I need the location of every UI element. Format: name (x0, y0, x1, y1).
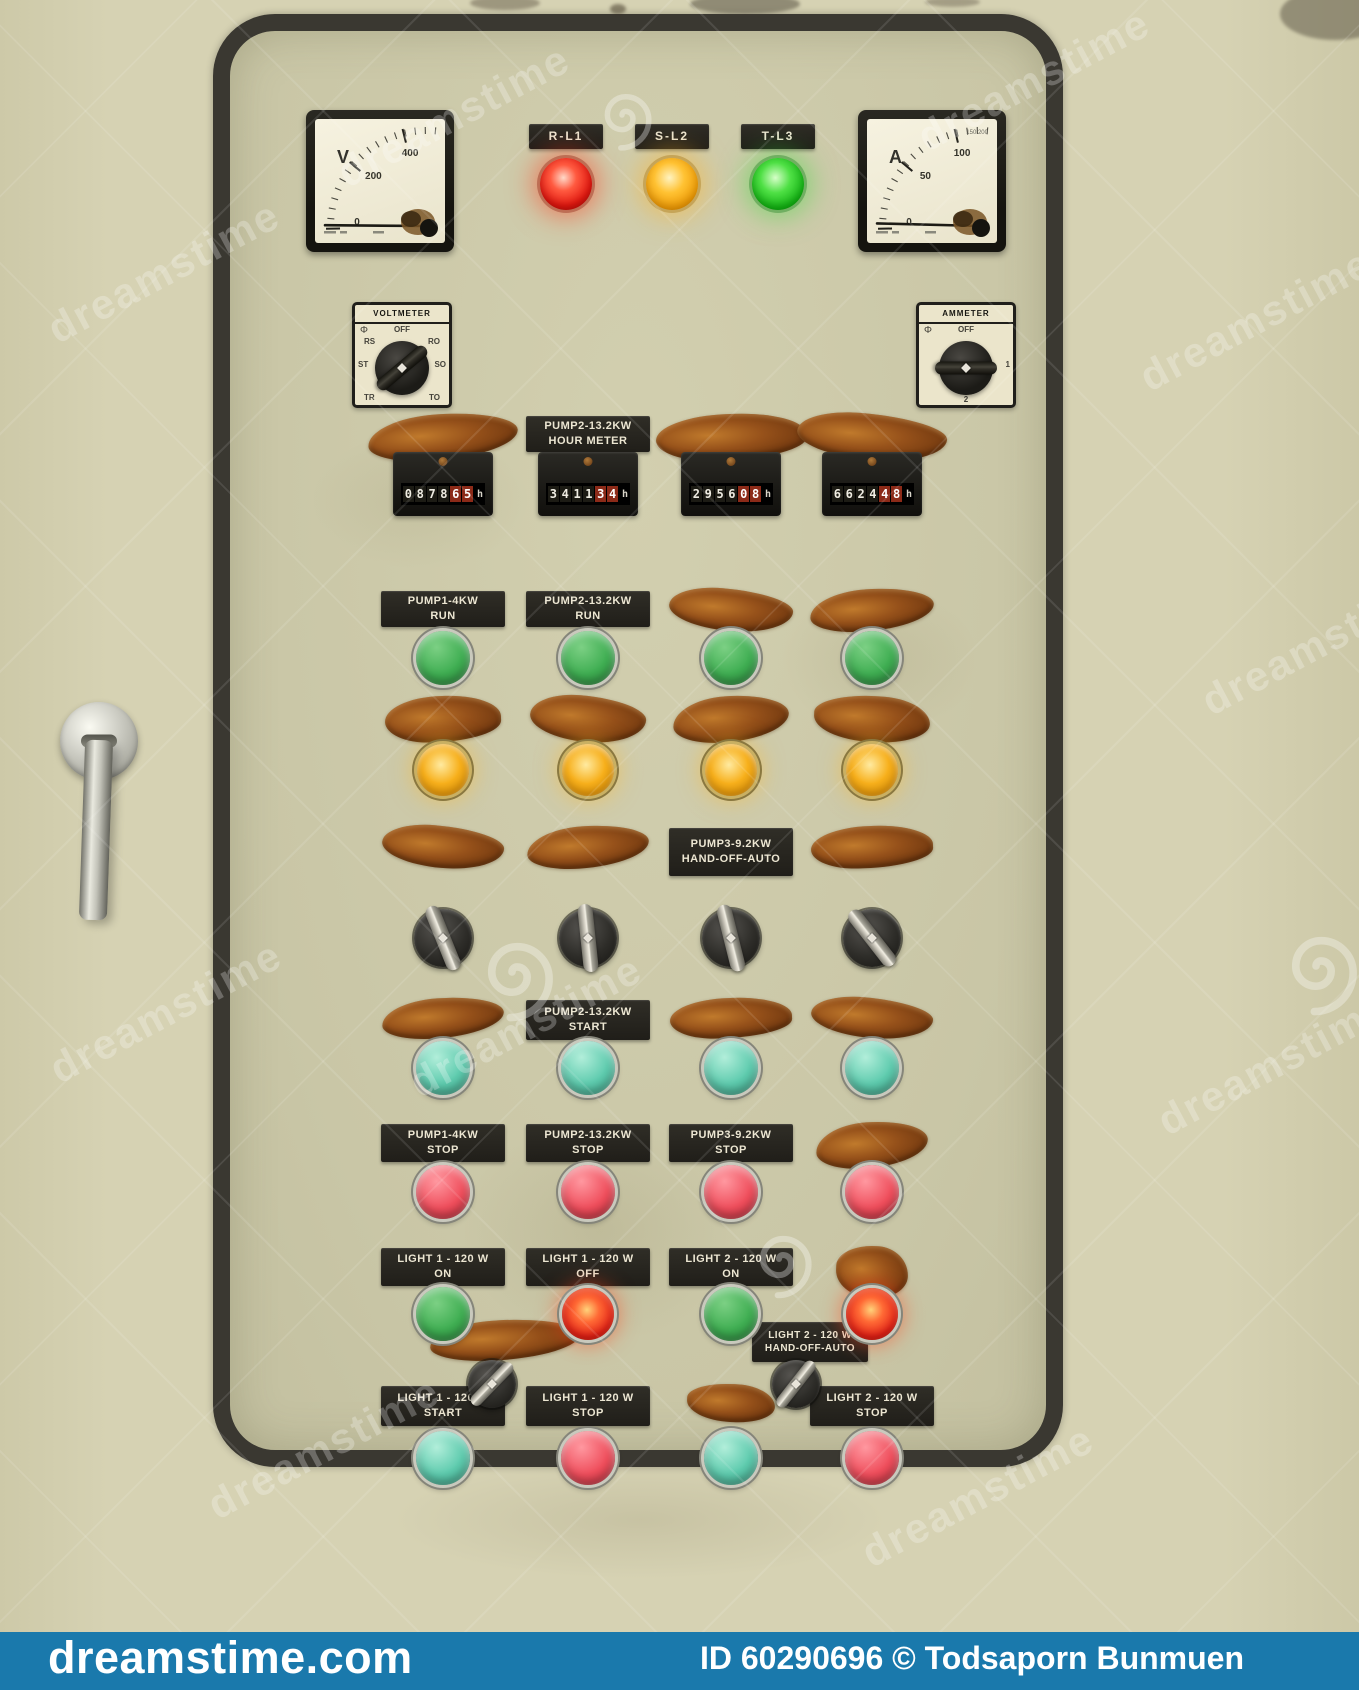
counter-digit: 8 (438, 486, 449, 502)
button-cap (416, 1041, 470, 1095)
hoa-knob (414, 909, 472, 967)
ammeter-gauge: 050100A150 200 (858, 110, 1006, 252)
counter-digit: 8 (891, 486, 902, 502)
button-cap (704, 1041, 758, 1095)
light-hoa-selector-2[interactable] (772, 1360, 820, 1408)
hoa-knob-lever (468, 1360, 516, 1409)
counter-digit: 7 (427, 486, 438, 502)
start-button-c3[interactable] (704, 1041, 758, 1095)
counter-digit: 2 (691, 486, 702, 502)
hoa-knob-lever (577, 903, 599, 972)
light-on-off-button-c3[interactable] (704, 1287, 758, 1341)
svg-text:0: 0 (906, 217, 912, 228)
counter-digit: 6 (844, 486, 855, 502)
label-pump1-4kw-run: PUMP1-4KWRUN (381, 591, 505, 627)
hoa-knob-lever (423, 904, 462, 973)
rust-streak (610, 4, 626, 14)
pilot-pilot-light-c4 (846, 744, 898, 796)
selector-position-2: 2 (964, 395, 968, 404)
counter-window: 087865h (401, 483, 485, 505)
s-l2-lens (646, 158, 698, 210)
selector-position-1: 1 (1006, 360, 1010, 369)
button-cap (561, 1041, 615, 1095)
ammeter-face: 050100A150 200 (867, 119, 997, 243)
counter-digit: 0 (738, 486, 749, 502)
light-hoa-selector-1[interactable] (468, 1360, 516, 1408)
counter-digit: 0 (403, 486, 414, 502)
phase-symbol: Φ (924, 325, 932, 336)
ammeter-selector-title: AMMETER (919, 305, 1013, 324)
counter-digit: 3 (595, 486, 606, 502)
pilot-lens (417, 744, 469, 796)
counter-digit: 5 (715, 486, 726, 502)
hoa-knob (772, 1360, 820, 1408)
label-pump2-13-2kw-start: PUMP2-13.2KWSTART (526, 1000, 650, 1040)
light-on-off-button-c1[interactable] (416, 1287, 470, 1341)
run-button-c3[interactable] (704, 631, 758, 685)
counter-digit: 5 (462, 486, 473, 502)
counter-digit: 6 (726, 486, 737, 502)
hour-counter-2: 341134h (538, 452, 638, 516)
counter-digit: 4 (560, 486, 571, 502)
button-cap (704, 1287, 758, 1341)
voltmeter-face: 0200400V (315, 119, 445, 243)
control-panel-photo: 0200400V 050100A150 200 VOLTMETERΦOFFRSR… (0, 0, 1359, 1690)
ammeter-selector-knob[interactable] (939, 341, 993, 395)
counter-digit: 6 (832, 486, 843, 502)
counter-digit: 9 (703, 486, 714, 502)
run-button-c1[interactable] (416, 631, 470, 685)
watermark-spiral-icon (1262, 912, 1359, 1025)
svg-text:150 200: 150 200 (966, 130, 988, 136)
light-start-stop-button-c4[interactable] (845, 1431, 899, 1485)
phase-symbol: Φ (360, 325, 368, 336)
pilot-lens (846, 744, 898, 796)
rust-streak (1280, 0, 1359, 40)
selector-body: ΦOFFRSROSTSOTRTO (355, 324, 449, 405)
t-l3-indicator-light (752, 158, 804, 210)
button-cap (704, 1431, 758, 1485)
button-cap (561, 1431, 615, 1485)
counter-unit: h (477, 489, 483, 500)
light-start-stop-button-c3[interactable] (704, 1431, 758, 1485)
label-pump2-13-2kw-stop: PUMP2-13.2KWSTOP (526, 1124, 650, 1162)
dreamstime-logo: dreamstime.com (48, 1632, 413, 1684)
door-handle[interactable] (79, 740, 113, 921)
watermark-text: dreamstime (1194, 563, 1359, 725)
button-cap (704, 1165, 758, 1219)
selector-knob-lever (374, 343, 430, 393)
button-cap (416, 631, 470, 685)
label-pump3-9-2kw-stop: PUMP3-9.2KWSTOP (669, 1124, 793, 1162)
selector-position-rs: RS (364, 337, 375, 346)
counter-digit: 8 (750, 486, 761, 502)
start-button-c4[interactable] (845, 1041, 899, 1095)
counter-window: 662448h (830, 483, 914, 505)
watermark-text: dreamstime (1132, 239, 1359, 401)
selector-body: ΦOFF12 (919, 324, 1013, 405)
r-l1-indicator-light (540, 158, 592, 210)
run-button-c2[interactable] (561, 631, 615, 685)
stop-button-c2[interactable] (561, 1165, 615, 1219)
rust-streak (690, 0, 800, 14)
counter-digit: 4 (867, 486, 878, 502)
counter-screw (584, 457, 593, 466)
counter-digit: 2 (856, 486, 867, 502)
hoa-knob (468, 1360, 516, 1408)
hand-off-auto-selector-c4[interactable] (843, 909, 901, 967)
run-button-c4[interactable] (845, 631, 899, 685)
voltmeter-selector-switch[interactable]: VOLTMETERΦOFFRSROSTSOTRTO (352, 302, 452, 408)
voltmeter-selector-knob[interactable] (375, 341, 429, 395)
counter-digit: 1 (583, 486, 594, 502)
light-start-stop-button-c1[interactable] (416, 1431, 470, 1485)
selector-position-to: TO (429, 393, 440, 402)
rust-streak (470, 0, 540, 10)
voltmeter-gauge: 0200400V (306, 110, 454, 252)
light-on-off-pilot-light-c2 (562, 1288, 614, 1340)
selector-position-tr: TR (364, 393, 375, 402)
label-pump2-13-2kw-hour-meter: PUMP2-13.2KWHOUR METER (526, 416, 650, 452)
svg-text:50: 50 (920, 171, 932, 182)
label-light-1-120-w-stop: LIGHT 1 - 120 WSTOP (526, 1386, 650, 1426)
button-cap (845, 1041, 899, 1095)
start-button-c2[interactable] (561, 1041, 615, 1095)
pilot-lens (562, 1288, 614, 1340)
watermark-bar: dreamstime.com ID 60290696 © Todsaporn B… (0, 1632, 1359, 1690)
selector-position-off: OFF (958, 325, 974, 334)
counter-screw (868, 457, 877, 466)
counter-screw (439, 457, 448, 466)
hoa-knob-lever (774, 1358, 818, 1410)
button-cap (561, 1165, 615, 1219)
t-l3-label: T-L3 (741, 124, 815, 149)
voltmeter-selector-title: VOLTMETER (355, 305, 449, 324)
start-button-c1[interactable] (416, 1041, 470, 1095)
counter-digit: 8 (415, 486, 426, 502)
hand-off-auto-selector-c2[interactable] (559, 909, 617, 967)
hour-counter-4: 662448h (822, 452, 922, 516)
pilot-lens (705, 744, 757, 796)
selector-knob-lever (935, 361, 997, 374)
counter-digit: 6 (450, 486, 461, 502)
label-light-1-120-w-off: LIGHT 1 - 120 WOFF (526, 1248, 650, 1286)
button-cap (845, 1431, 899, 1485)
stop-button-c3[interactable] (704, 1165, 758, 1219)
hoa-knob (702, 909, 760, 967)
button-cap (416, 1431, 470, 1485)
button-cap (845, 631, 899, 685)
selector-position-st: ST (358, 360, 368, 369)
rust-streak (925, 0, 980, 7)
ammeter-selector-switch[interactable]: AMMETERΦOFF12 (916, 302, 1016, 408)
counter-unit: h (622, 489, 628, 500)
label-light-2-120-w-stop: LIGHT 2 - 120 WSTOP (810, 1386, 934, 1426)
counter-digit: 4 (879, 486, 890, 502)
pilot-pilot-light-c3 (705, 744, 757, 796)
counter-window: 341134h (546, 483, 630, 505)
r-l1-label: R-L1 (529, 124, 603, 149)
hand-off-auto-selector-c3[interactable] (702, 909, 760, 967)
hoa-knob (843, 909, 901, 967)
hoa-knob (559, 909, 617, 967)
counter-unit: h (906, 489, 912, 500)
button-cap (416, 1165, 470, 1219)
counter-unit: h (765, 489, 771, 500)
button-cap (416, 1287, 470, 1341)
svg-text:V: V (337, 147, 349, 167)
hand-off-auto-selector-c1[interactable] (414, 909, 472, 967)
s-l2-indicator-light (646, 158, 698, 210)
button-cap (845, 1165, 899, 1219)
s-l2-label: S-L2 (635, 124, 709, 149)
pilot-lens (846, 1288, 898, 1340)
label-pump2-13-2kw-run: PUMP2-13.2KWRUN (526, 591, 650, 627)
label-light-2-120-w-on: LIGHT 2 - 120 WON (669, 1248, 793, 1286)
hour-counter-1: 087865h (393, 452, 493, 516)
selector-position-ro: RO (428, 337, 440, 346)
label-light-1-120-w-on: LIGHT 1 - 120 WON (381, 1248, 505, 1286)
light-start-stop-button-c2[interactable] (561, 1431, 615, 1485)
pilot-pilot-light-c1 (417, 744, 469, 796)
hoa-knob-lever (845, 907, 899, 970)
counter-digit: 3 (548, 486, 559, 502)
counter-digit: 1 (572, 486, 583, 502)
image-credit: ID 60290696 © Todsaporn Bunmuen (700, 1640, 1244, 1677)
stop-button-c4[interactable] (845, 1165, 899, 1219)
counter-screw (727, 457, 736, 466)
svg-text:400: 400 (402, 148, 419, 159)
stop-button-c1[interactable] (416, 1165, 470, 1219)
counter-digit: 4 (607, 486, 618, 502)
label-pump1-4kw-stop: PUMP1-4KWSTOP (381, 1124, 505, 1162)
r-l1-lens (540, 158, 592, 210)
button-cap (704, 631, 758, 685)
label-pump3-9-2kw-hand-off-auto: PUMP3-9.2KWHAND-OFF-AUTO (669, 828, 793, 876)
light-on-off-pilot-light-c4 (846, 1288, 898, 1340)
selector-position-off: OFF (394, 325, 410, 334)
t-l3-lens (752, 158, 804, 210)
counter-window: 295608h (689, 483, 773, 505)
pilot-lens (562, 744, 614, 796)
selector-position-so: SO (434, 360, 446, 369)
hoa-knob-lever (715, 903, 746, 973)
svg-text:200: 200 (365, 171, 382, 182)
pilot-pilot-light-c2 (562, 744, 614, 796)
hour-counter-3: 295608h (681, 452, 781, 516)
watermark-text: dreamstime (1150, 983, 1359, 1145)
svg-text:100: 100 (954, 148, 971, 159)
button-cap (561, 631, 615, 685)
svg-text:A: A (889, 147, 902, 167)
